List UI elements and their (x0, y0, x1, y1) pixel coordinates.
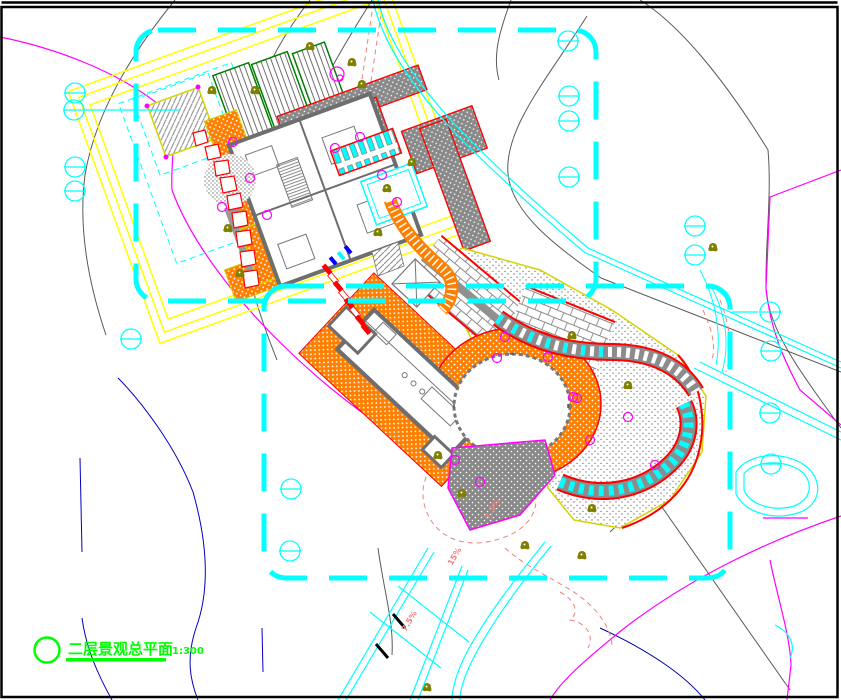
plan-svg: 7.5% 15% 7.5% 二层景观总平面 1:300 (0, 0, 841, 700)
slope-label-2: 15% (446, 546, 463, 567)
drawing-title: 二层景观总平面 (68, 640, 173, 658)
legend-circle-icon (35, 638, 60, 663)
pond-outline (736, 456, 818, 516)
grey-stipple-terrace (448, 440, 555, 530)
slope-label-1: 7.5% (400, 609, 419, 633)
cad-site-plan: 7.5% 15% 7.5% 二层景观总平面 1:300 (0, 0, 841, 700)
drawing-scale: 1:300 (172, 646, 204, 657)
title-underline (66, 658, 166, 662)
title-block: 二层景观总平面 1:300 (35, 638, 204, 663)
